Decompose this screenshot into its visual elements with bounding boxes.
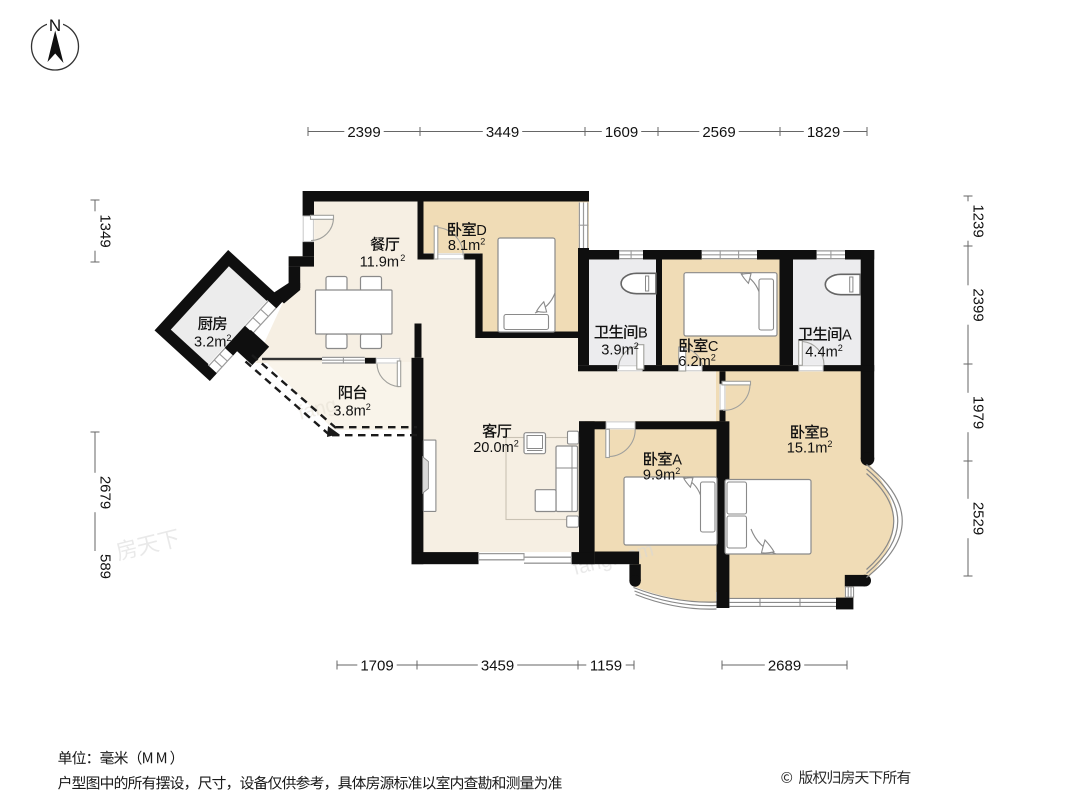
svg-text:2: 2 bbox=[226, 333, 231, 343]
svg-text:2: 2 bbox=[838, 343, 843, 353]
svg-text:1979: 1979 bbox=[970, 396, 987, 429]
svg-text:6.2m: 6.2m bbox=[678, 354, 710, 370]
svg-text:2399: 2399 bbox=[347, 124, 380, 141]
svg-text:3.2m: 3.2m bbox=[194, 335, 226, 351]
svg-text:9.9m: 9.9m bbox=[643, 467, 675, 483]
svg-text:2: 2 bbox=[634, 341, 639, 351]
svg-text:4.4m: 4.4m bbox=[805, 344, 837, 360]
svg-text:1829: 1829 bbox=[807, 124, 840, 141]
svg-text:3459: 3459 bbox=[481, 658, 514, 675]
svg-text:2: 2 bbox=[675, 466, 680, 476]
svg-text:2: 2 bbox=[711, 353, 716, 363]
svg-text:B: B bbox=[638, 325, 648, 341]
svg-text:1159: 1159 bbox=[590, 658, 622, 675]
svg-text:3.8m: 3.8m bbox=[333, 403, 365, 419]
svg-text:2: 2 bbox=[400, 253, 405, 263]
svg-text:A: A bbox=[842, 327, 852, 343]
svg-text:3.9m: 3.9m bbox=[601, 342, 633, 358]
svg-text:2569: 2569 bbox=[702, 124, 735, 141]
svg-text:20.0m: 20.0m bbox=[473, 440, 514, 456]
svg-text:2689: 2689 bbox=[768, 658, 801, 675]
svg-text:2: 2 bbox=[514, 438, 519, 448]
svg-text:11.9m: 11.9m bbox=[360, 254, 399, 270]
svg-text:2: 2 bbox=[366, 402, 371, 412]
svg-text:2399: 2399 bbox=[970, 288, 987, 321]
svg-text:1239: 1239 bbox=[970, 204, 987, 237]
svg-text:2679: 2679 bbox=[97, 476, 114, 509]
svg-text:15.1m: 15.1m bbox=[787, 440, 828, 456]
svg-text:589: 589 bbox=[97, 554, 114, 579]
svg-text:2529: 2529 bbox=[970, 502, 987, 535]
svg-text:8.1m: 8.1m bbox=[448, 238, 480, 254]
svg-text:1609: 1609 bbox=[605, 124, 638, 141]
svg-text:1349: 1349 bbox=[97, 214, 114, 247]
svg-text:1709: 1709 bbox=[360, 658, 393, 675]
svg-text:2: 2 bbox=[480, 236, 485, 246]
svg-text:3449: 3449 bbox=[486, 124, 519, 141]
svg-text:2: 2 bbox=[827, 439, 832, 449]
